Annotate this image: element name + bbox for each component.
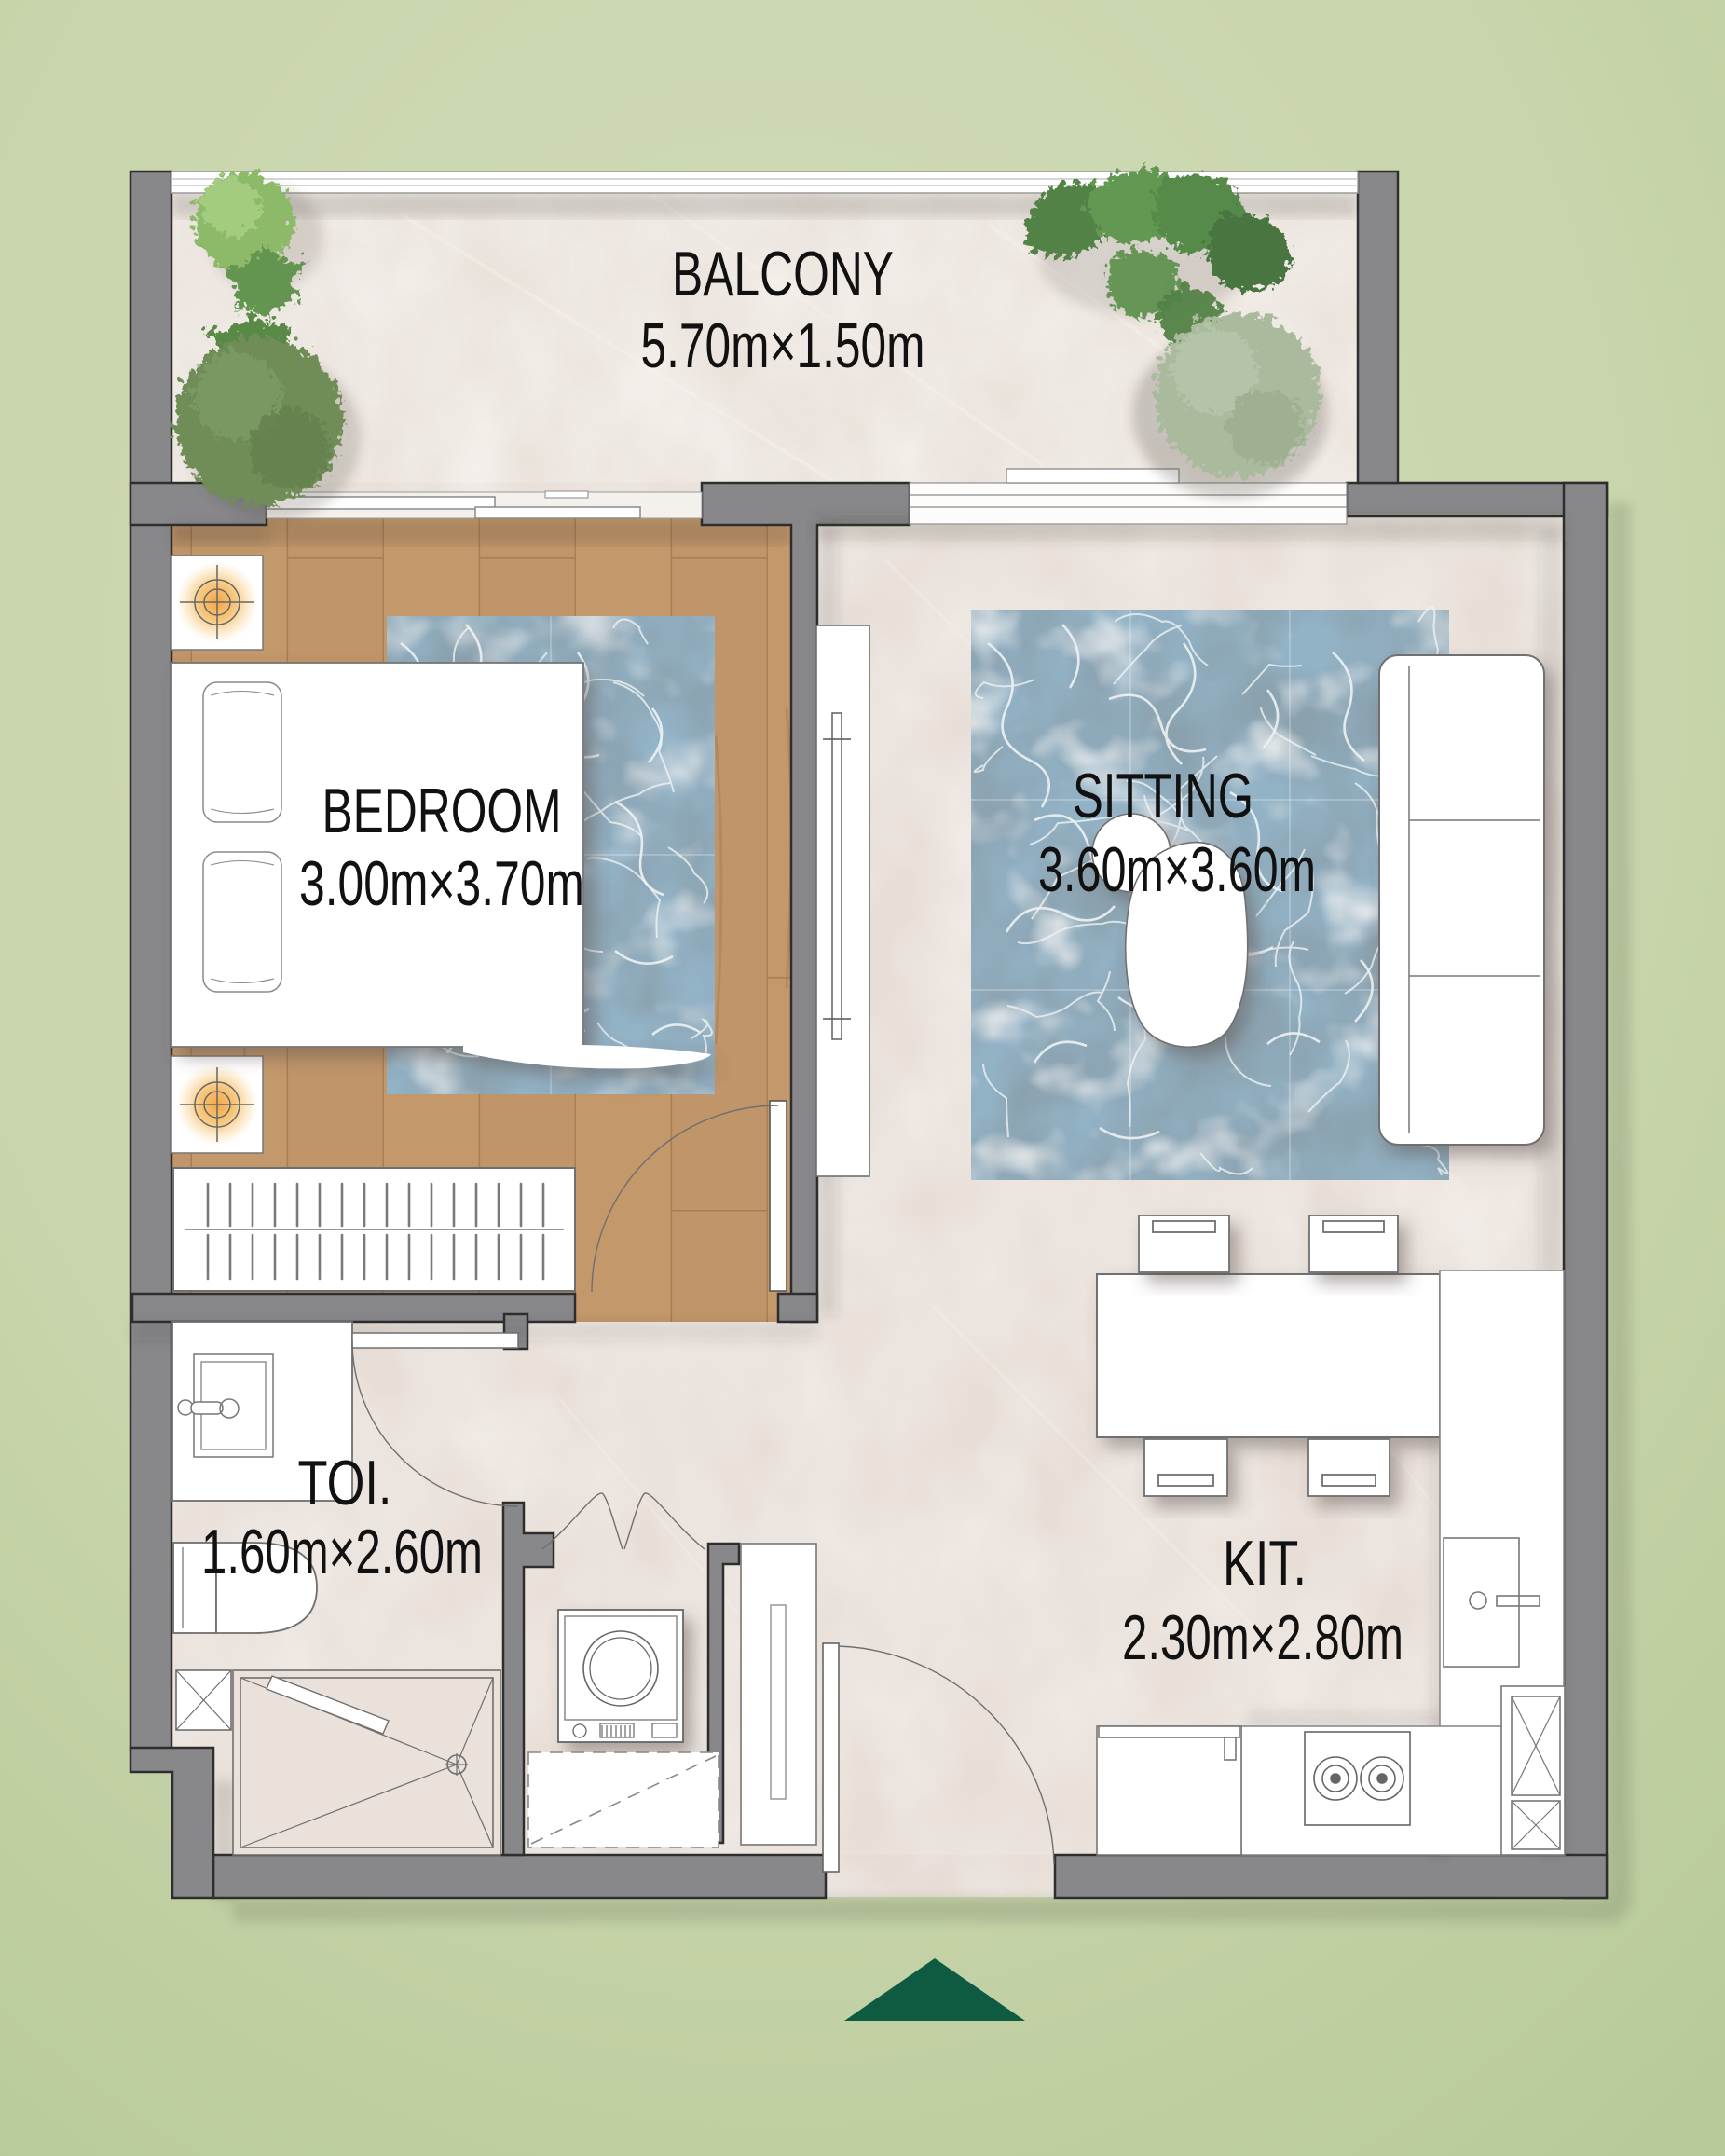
svg-text:5.70m×1.50m: 5.70m×1.50m: [641, 310, 925, 381]
svg-text:KIT.: KIT.: [1223, 1528, 1307, 1599]
svg-text:1.60m×2.60m: 1.60m×2.60m: [201, 1517, 483, 1587]
svg-text:TOI.: TOI.: [298, 1448, 392, 1518]
svg-text:BALCONY: BALCONY: [672, 239, 894, 309]
svg-text:3.00m×3.70m: 3.00m×3.70m: [299, 848, 584, 919]
svg-text:BEDROOM: BEDROOM: [322, 776, 562, 846]
svg-text:3.60m×3.60m: 3.60m×3.60m: [1038, 834, 1316, 905]
svg-text:SITTING: SITTING: [1073, 761, 1253, 831]
svg-text:2.30m×2.80m: 2.30m×2.80m: [1122, 1602, 1403, 1673]
